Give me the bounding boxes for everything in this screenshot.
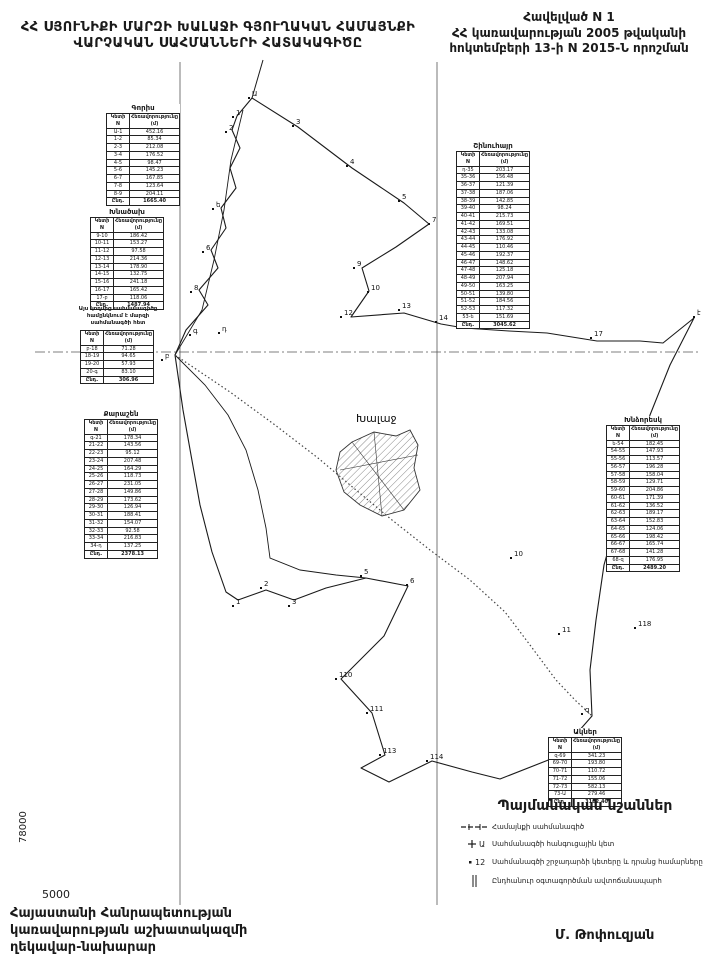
legend-label: Ընդհանուր օգտագործման ավտոճանապարհ [492, 877, 662, 885]
signature-name: Մ. Թոփուզյան [555, 928, 654, 943]
issuing-authority: Հայաստանի Հանրապետության կառավարության ա… [10, 906, 310, 957]
grid-coordinate-vertical-label: 78000 [18, 811, 29, 843]
distance-table: Կետի NՀեռավորությունը (մ)դ-35203.1735-36… [456, 151, 530, 329]
svg-text:12: 12 [344, 309, 353, 317]
legend-item-junction: Ա Սահմանագծի հանգուցային կետ [458, 838, 712, 850]
svg-text:6: 6 [410, 577, 415, 585]
svg-text:11: 11 [562, 626, 571, 634]
authority-line2: կառավարության աշխատակազմի [10, 923, 310, 940]
annex-line3: հոկտեմբերի 13-ի N 2015-Ն որոշման [425, 41, 713, 57]
boundary-line-symbol-icon [458, 822, 492, 832]
svg-text:14: 14 [439, 314, 448, 322]
table-title: Շինուհայր [456, 142, 530, 150]
legend-item-road: Ընդհանուր օգտագործման ավտոճանապարհ [458, 874, 712, 888]
svg-text:2: 2 [229, 124, 233, 132]
distance-table: Կետի NՀեռավորությունը (մ)Ա-1452.161-285.… [106, 113, 180, 206]
distance-table-goris: Գորիս Կետի NՀեռավորությունը (մ)Ա-1452.16… [106, 104, 180, 206]
svg-text:8: 8 [194, 284, 198, 292]
svg-text:դ: դ [222, 325, 227, 333]
svg-text:7: 7 [432, 216, 436, 224]
road-line [175, 355, 592, 716]
table-title: Քարաշեն [84, 410, 158, 418]
svg-text:118: 118 [638, 620, 651, 628]
legend-item-turning-point: 12 Սահմանագծի շրջադարձի կետերը և դրանց հ… [458, 856, 712, 868]
distance-table-akner: Ակներ Կետի NՀեռավորությունը (մ)զ-69341.2… [548, 728, 622, 807]
inner-boundary-northwest [175, 110, 243, 355]
svg-text:9: 9 [357, 260, 361, 268]
page-title-line1: ՀՀ ՍՅՈՒՆԻՔԻ ՄԱՐԶԻ ԽԱԼԱՋԻ ԳՅՈՒՂԱԿԱՆ ՀԱՄԱՅ… [12, 20, 424, 36]
table-title: Խնձորեսկ [606, 416, 680, 424]
legend-item-boundary: Համայնքի սահմանագիծ [458, 822, 712, 832]
legend-title: Պայմանական նշաններ [458, 798, 712, 814]
distance-table: Կետի NՀեռավորությունը (մ)գ-21178.3421-22… [84, 419, 158, 559]
boundary-note: Այս կողմից սահմանագիծը համընկնում է մարզ… [60, 306, 176, 327]
svg-text:111: 111 [370, 705, 383, 713]
authority-line1: Հայաստանի Հանրապետության [10, 906, 310, 923]
authority-line3: ղեկավար-նախարար [10, 940, 310, 957]
svg-text:110: 110 [339, 671, 352, 679]
svg-text:ե: ե [216, 201, 220, 209]
legend-label: Համայնքի սահմանագիծ [492, 823, 584, 831]
settlement-label: Խալաջ [356, 412, 397, 425]
note-line3: սահմանագծի հետ [60, 320, 176, 327]
distance-table-khnatsakh: Խնածախ Կետի NՀեռավորությունը (մ)9-10186.… [90, 208, 164, 310]
distance-table-karashen: Քարաշեն Կետի NՀեռավորությունը (մ)գ-21178… [84, 410, 158, 559]
note-line2: համընկնում է մարզի [60, 313, 176, 320]
grid-coordinate-horizontal-label: 5000 [42, 888, 70, 901]
distance-table: Կետի NՀեռավորությունը (մ)զ-69341.2369-70… [548, 737, 622, 807]
svg-text:6: 6 [206, 244, 211, 252]
svg-text:4: 4 [350, 158, 355, 166]
road-symbol-icon [458, 874, 492, 888]
annex-line2: ՀՀ կառավարության 2005 թվականի [425, 26, 713, 42]
table-title: Ակներ [548, 728, 622, 736]
page-title-line2: ՎԱՐՉԱԿԱՆ ՍԱՀՄԱՆՆԵՐԻ ՀԱՏԱԿԱԳԻԾԸ [12, 36, 424, 52]
legend-label: Սահմանագծի հանգուցային կետ [492, 840, 614, 848]
annex-reference: Հավելված N 1 ՀՀ կառավարության 2005 թվակա… [425, 10, 713, 57]
svg-text:114: 114 [430, 753, 444, 761]
svg-text:3: 3 [296, 118, 300, 126]
svg-text:113: 113 [383, 747, 396, 755]
distance-table-khndzoresk: Խնձորեսկ Կետի NՀեռավորությունը (մ)ե-5418… [606, 416, 680, 572]
svg-text:12: 12 [475, 858, 485, 867]
svg-text:1: 1 [236, 109, 240, 117]
svg-text:5: 5 [364, 568, 368, 576]
distance-table-shinuhayr: Շինուհայր Կետի NՀեռավորությունը (մ)դ-352… [456, 142, 530, 329]
legend: Պայմանական նշաններ Համայնքի սահմանագիծ Ա… [458, 798, 712, 894]
svg-text:Ա: Ա [252, 90, 257, 98]
turning-point-symbol-icon: 12 [458, 856, 492, 868]
distance-table: Կետի NՀեռավորությունը (մ)ե-54182.4554-55… [606, 425, 680, 572]
svg-text:բ: բ [165, 352, 169, 360]
svg-text:17: 17 [594, 330, 603, 338]
svg-text:3: 3 [292, 598, 296, 606]
svg-text:5: 5 [402, 193, 406, 201]
distance-table-small: Կետի NՀեռավորությունը (մ)բ-1871.2818-199… [80, 330, 154, 384]
junction-point-symbol-icon: Ա [458, 838, 492, 850]
table-title: Գորիս [106, 104, 180, 112]
svg-text:13: 13 [402, 302, 411, 310]
svg-text:Ա: Ա [479, 840, 485, 849]
annex-line1: Հավելված N 1 [425, 10, 713, 26]
distance-table: Կետի NՀեռավորությունը (մ)9-10186.4210-11… [90, 217, 164, 310]
distance-table: Կետի NՀեռավորությունը (մ)բ-1871.2818-199… [80, 330, 154, 384]
svg-text:գ: գ [193, 327, 198, 335]
note-line1: Այս կողմից սահմանագիծը [60, 306, 176, 313]
svg-text:է: է [697, 309, 701, 317]
svg-text:10: 10 [514, 550, 523, 558]
svg-text:10: 10 [371, 284, 380, 292]
svg-text:2: 2 [264, 580, 268, 588]
svg-text:զ: զ [585, 706, 590, 714]
table-title: Խնածախ [90, 208, 164, 216]
page-title: ՀՀ ՍՅՈՒՆԻՔԻ ՄԱՐԶԻ ԽԱԼԱՋԻ ԳՅՈՒՂԱԿԱՆ ՀԱՄԱՅ… [12, 20, 424, 53]
svg-text:1: 1 [236, 598, 240, 606]
legend-label: Սահմանագծի շրջադարձի կետերը և դրանց համա… [492, 858, 703, 866]
